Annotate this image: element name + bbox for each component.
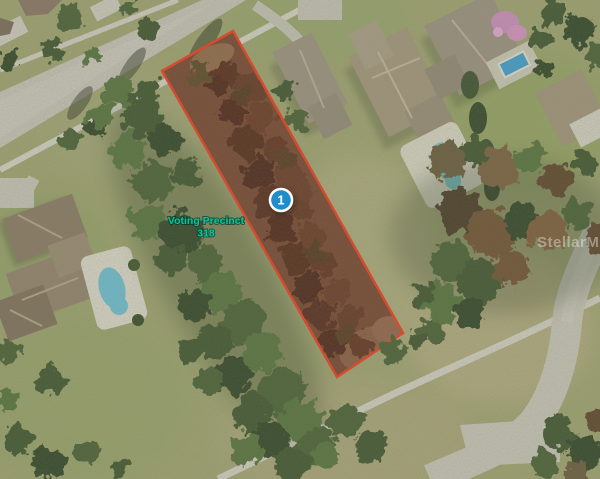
watermark: StellarMLS [537, 234, 600, 251]
aerial-map: StellarMLS Voting Precinct 318 1 [0, 0, 600, 479]
photo-grain-overlay [0, 0, 600, 479]
marker-number: 1 [278, 194, 285, 208]
precinct-label-line2: 318 [197, 228, 215, 240]
aerial-map-view[interactable]: StellarMLS Voting Precinct 318 1 [0, 0, 600, 479]
precinct-label-line1: Voting Precinct [168, 215, 245, 227]
